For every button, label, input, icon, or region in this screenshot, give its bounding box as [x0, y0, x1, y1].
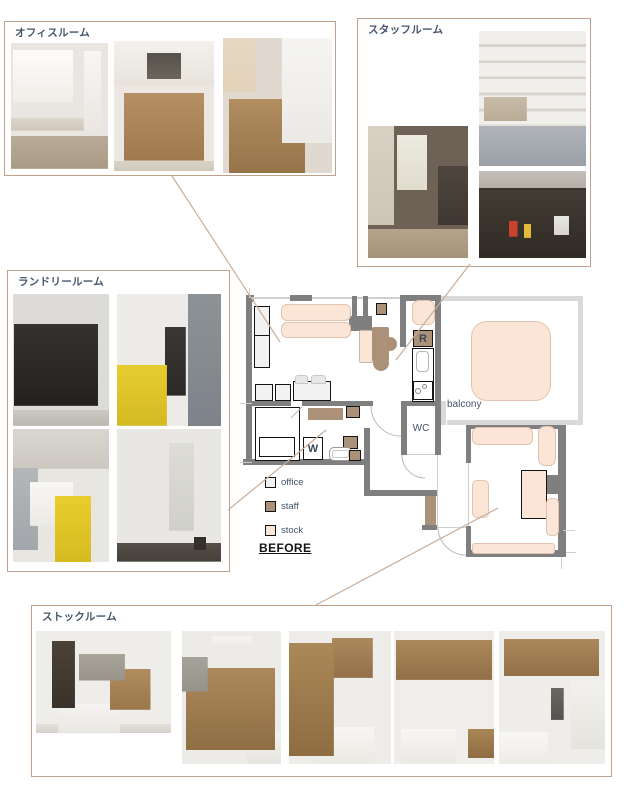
door-opening-line	[468, 463, 469, 526]
wall	[290, 295, 312, 301]
wall	[400, 296, 406, 347]
stock-shelf	[472, 480, 489, 518]
desk	[359, 330, 373, 363]
tick	[240, 403, 252, 404]
laundry-photo-2	[117, 294, 221, 426]
chair	[311, 375, 326, 384]
sink-basin	[416, 351, 429, 372]
stock-shelf	[281, 322, 351, 338]
fridge-box: R	[413, 330, 433, 347]
legend-row-stock: stock	[265, 525, 303, 536]
office-photo-3	[223, 38, 332, 173]
office-room-label: オフィスルーム	[15, 25, 90, 40]
stock-photo-5	[499, 631, 605, 764]
legend-office-label: office	[281, 477, 304, 488]
laundry-photo-1	[13, 294, 109, 426]
stock-shelf	[281, 304, 351, 321]
staff-room-label: スタッフルーム	[368, 22, 443, 37]
stock-photo-2	[182, 631, 281, 764]
stock-photo-4	[394, 631, 494, 764]
wall	[422, 525, 437, 530]
staff-photo-1	[368, 126, 468, 258]
pillar-leg	[363, 296, 368, 316]
stock-shelf	[472, 543, 555, 554]
page: オフィスルーム スタッフルーム ランドリールーム ストックルーム	[0, 0, 624, 798]
balcony-rail	[441, 401, 446, 425]
balcony-table	[471, 321, 551, 401]
wc-door-arc	[402, 455, 425, 478]
staff-unit	[376, 303, 387, 315]
stock-shelf	[546, 498, 559, 536]
office-cabinet	[254, 306, 270, 336]
before-title: BEFORE	[259, 541, 311, 555]
stock-room-label: ストックルーム	[42, 609, 117, 624]
wall	[252, 401, 291, 406]
pillar	[349, 316, 372, 331]
tick	[249, 288, 250, 298]
washer-label: W	[308, 443, 318, 455]
stock-shelf	[472, 427, 533, 445]
stock-shelf	[538, 426, 556, 466]
stock-door-arc	[438, 527, 466, 555]
wall	[558, 422, 566, 557]
threshold-line	[437, 527, 466, 528]
entry-locker	[425, 496, 436, 525]
wall	[364, 428, 370, 496]
burner	[415, 388, 421, 394]
laundry-room-group: ランドリールーム	[7, 270, 230, 572]
washing-machine	[259, 437, 295, 457]
wall	[435, 296, 441, 406]
tick	[566, 552, 576, 553]
legend-stock-label: stock	[281, 525, 303, 536]
office-desk	[255, 384, 273, 401]
pillar	[546, 475, 558, 494]
hall-door-arc	[371, 406, 401, 436]
legend-row-staff: staff	[265, 501, 299, 512]
stock-shelf	[412, 300, 435, 325]
legend-row-office: office	[265, 477, 304, 488]
chair	[295, 375, 308, 384]
stock-photo-3	[289, 631, 391, 764]
stock-rack	[521, 470, 547, 519]
fridge-label: R	[419, 333, 427, 345]
staff-photo-2	[479, 31, 586, 166]
office-cabinet	[254, 335, 270, 368]
chair	[373, 355, 389, 371]
staff-unit	[346, 406, 360, 418]
tick	[561, 557, 562, 569]
legend-staff-label: staff	[281, 501, 299, 512]
stock-room-group: ストックルーム	[31, 605, 612, 777]
wall	[364, 490, 425, 496]
balcony-rail	[578, 296, 583, 425]
office-room-group: オフィスルーム	[4, 21, 336, 176]
balcony-label: balcony	[447, 399, 481, 410]
staff-photo-3	[479, 171, 586, 258]
laundry-room-label: ランドリールーム	[18, 274, 104, 289]
office-swatch	[265, 477, 276, 488]
pillar-leg	[352, 296, 357, 316]
wall	[246, 295, 252, 465]
tick	[563, 530, 575, 531]
staff-shelf	[308, 408, 343, 420]
balcony-rail	[441, 296, 583, 301]
office-desk	[293, 381, 331, 401]
burner	[422, 384, 427, 389]
threshold-line	[407, 454, 435, 455]
office-desk	[275, 384, 291, 401]
stock-swatch	[265, 525, 276, 536]
chair	[383, 337, 397, 351]
laundry-photo-4	[117, 429, 221, 562]
laundry-photo-3	[13, 429, 109, 562]
guide-line	[437, 455, 438, 527]
wall	[302, 401, 373, 406]
office-photo-2	[114, 41, 214, 171]
washer-box: W	[303, 437, 323, 460]
stock-photo-1	[36, 631, 171, 733]
balcony-rail	[447, 420, 583, 425]
tick	[240, 462, 252, 463]
office-photo-1	[11, 43, 108, 169]
staff-swatch	[265, 501, 276, 512]
staff-room-group: スタッフルーム	[357, 18, 591, 267]
staff-unit	[349, 450, 361, 461]
wc-label: WC	[401, 423, 441, 434]
